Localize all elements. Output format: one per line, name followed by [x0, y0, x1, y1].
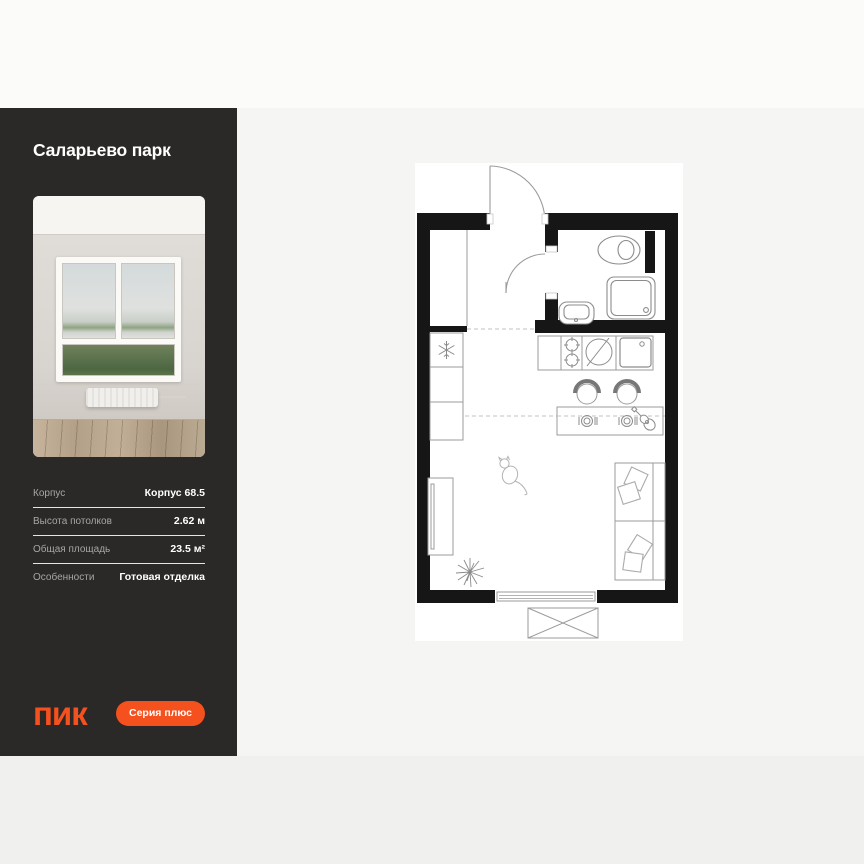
window-pane-left [62, 263, 116, 339]
floor-plan-drawing [415, 163, 683, 641]
entrance-door-jambs [487, 214, 548, 224]
bottom-letterbox [0, 756, 864, 864]
cat-icon [499, 457, 527, 495]
sink-bowl-icon [620, 338, 651, 367]
spec-value: Корпус 68.5 [145, 487, 205, 499]
spec-label: Общая площадь [33, 544, 110, 555]
listing-image: Саларьево парк Корпус Корпус 68.5 [0, 0, 864, 864]
photo-radiator-pipe [158, 396, 186, 398]
series-plus-button[interactable]: Серия плюс [116, 701, 205, 726]
photo-ceiling [33, 196, 205, 235]
spec-list: Корпус Корпус 68.5 Высота потолков 2.62 … [33, 480, 205, 591]
ventilation-shaft-wall [645, 231, 655, 273]
pik-logo: ПИК [33, 701, 87, 727]
photo-window [56, 257, 181, 382]
spec-label: Высота потолков [33, 516, 112, 527]
bathroom-door-jambs [546, 246, 557, 299]
photo-wood-floor [33, 419, 205, 457]
info-sidebar: Саларьево парк Корпус Корпус 68.5 [0, 108, 237, 756]
bathroom-door-icon [506, 254, 545, 293]
spec-value: Готовая отделка [119, 571, 205, 583]
spec-label: Особенности [33, 572, 94, 583]
tv-unit-icon [428, 478, 453, 555]
spec-value: 23.5 м² [170, 543, 205, 555]
window-icon [497, 592, 595, 601]
photo-radiator [86, 388, 158, 407]
spec-row-total-area: Общая площадь 23.5 м² [33, 536, 205, 564]
room-photo [33, 196, 205, 457]
sidebar-footer: ПИК Серия плюс [33, 701, 205, 727]
shower-cabin-icon [607, 277, 655, 319]
spec-row-features: Особенности Готовая отделка [33, 564, 205, 591]
plan-panel [237, 108, 864, 756]
entrance-door-icon [490, 166, 545, 222]
spec-label: Корпус [33, 488, 65, 499]
bar-stool-icon [615, 381, 639, 404]
spec-row-korpus: Корпус Корпус 68.5 [33, 480, 205, 508]
plant-icon [456, 558, 484, 587]
window-pane-trees [62, 344, 175, 376]
project-title: Саларьево парк [33, 140, 205, 161]
spec-row-ceiling-height: Высота потолков 2.62 м [33, 508, 205, 536]
bar-stool-icon [575, 381, 599, 404]
top-letterbox [0, 0, 864, 108]
balcony-unit-icon [528, 608, 598, 638]
washbasin-icon [559, 302, 594, 324]
spec-value: 2.62 м [174, 515, 205, 527]
window-pane-right [121, 263, 175, 339]
toilet-icon [598, 236, 640, 264]
floor-plan [415, 163, 683, 641]
